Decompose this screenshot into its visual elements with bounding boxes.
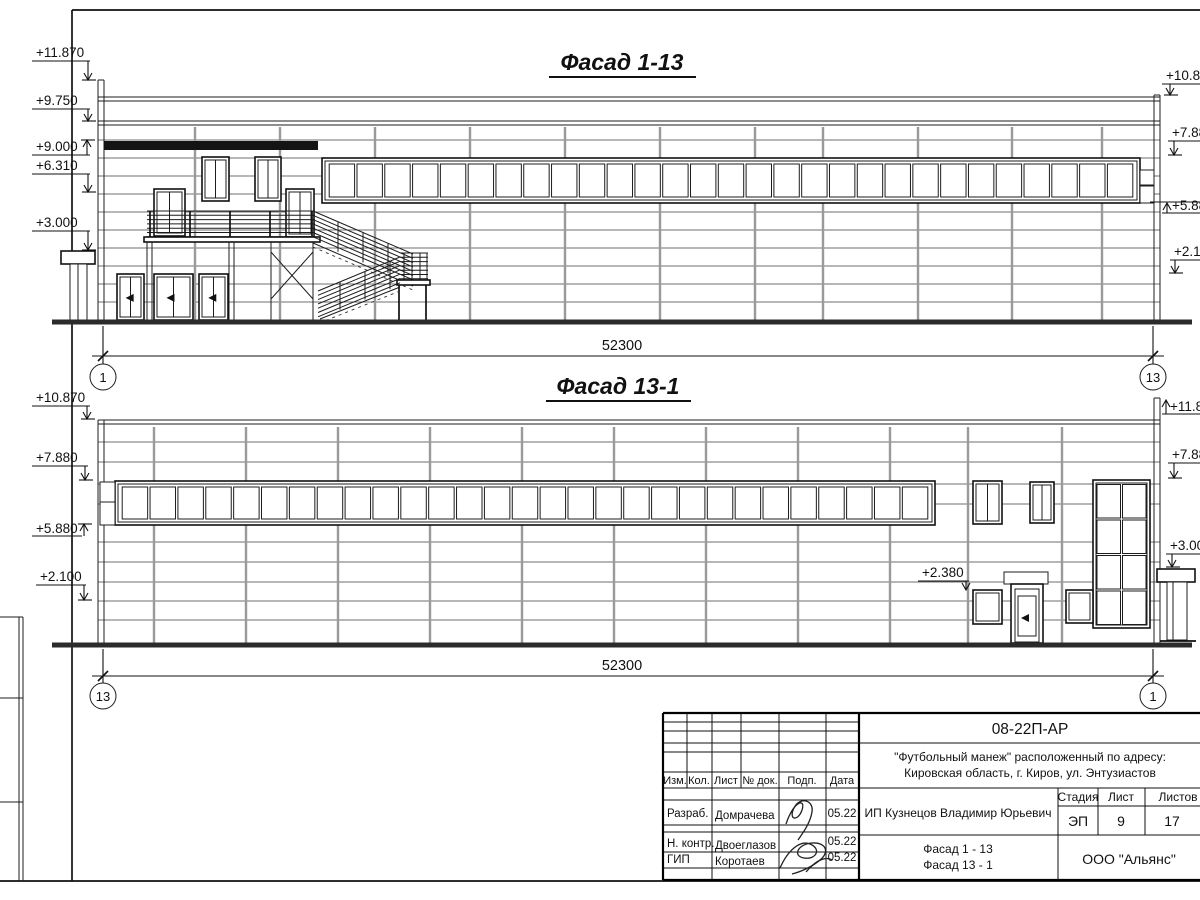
col-izm: Изм. xyxy=(663,775,687,787)
stage-value: ЭП xyxy=(1068,813,1088,829)
sheets-total: 17 xyxy=(1164,813,1180,829)
elevation-mark-label: +2.100 xyxy=(40,569,82,584)
drawing-sheet: Фасад 1-13 52300 1 13 Фасад 13-1 52300 1… xyxy=(0,0,1200,900)
elevation-mark-label: +11.870 xyxy=(1170,399,1200,414)
col-list: Лист xyxy=(714,775,738,787)
doc-number: 08-22П-АР xyxy=(992,721,1069,738)
drawing-name-line1: Фасад 1 - 13 xyxy=(923,842,993,856)
role-gip: ГИП xyxy=(667,854,690,866)
elevation-mark-label: +2.100 xyxy=(1174,244,1200,259)
stage-label: Стадия xyxy=(1058,790,1099,804)
dimension-label: 52300 xyxy=(602,338,642,354)
elevation-mark-label: +5.880 xyxy=(1172,198,1200,213)
col-kol: Кол. xyxy=(688,775,710,787)
elevation-mark-label: +6.310 xyxy=(36,158,78,173)
elevation-mark-label: +7.880 xyxy=(1172,125,1200,140)
col-doc: № док. xyxy=(742,775,777,787)
name-razrab: Домрачева xyxy=(715,810,775,822)
drawing-name-line2: Фасад 13 - 1 xyxy=(923,858,993,872)
axis-label: 1 xyxy=(1149,689,1156,704)
elevation-mark-label: +10.870 xyxy=(1166,68,1200,83)
elevation-mark-label: +7.880 xyxy=(36,450,78,465)
axis-label: 13 xyxy=(1146,370,1160,385)
role-razrab: Разраб. xyxy=(667,808,708,820)
side-stamp xyxy=(0,617,23,881)
elevation-mark-label: +5.880 xyxy=(36,521,78,536)
sheets-label: Листов xyxy=(1159,790,1198,804)
facade-13-1-dimension: 52300 13 1 xyxy=(90,649,1166,709)
dimension-label: 52300 xyxy=(602,658,642,674)
signature-nkontr-gip xyxy=(780,843,826,874)
company: ООО "Альянс" xyxy=(1082,851,1176,867)
axis-label: 13 xyxy=(96,689,110,704)
date-razrab: 05.22 xyxy=(828,808,857,820)
elevation-mark-label: +10.870 xyxy=(36,390,85,405)
date-nkontr: 05.22 xyxy=(828,836,857,848)
elevation-mark-label: +3.000 xyxy=(36,215,78,230)
role-nkontr: Н. контр. xyxy=(667,838,714,850)
axis-label: 1 xyxy=(99,370,106,385)
elevation-mark-label: +11.870 xyxy=(36,45,84,60)
title-block: Изм. Кол. Лист № док. Подп. Дата Разраб.… xyxy=(663,713,1200,880)
elevation-mark-label: +9.000 xyxy=(36,139,78,154)
project-address-line1: "Футбольный манеж" расположенный по адре… xyxy=(894,750,1166,764)
facade-1-13-title: Фасад 1-13 xyxy=(561,49,684,75)
name-gip: Коротаев xyxy=(715,856,765,868)
sheet-svg: Фасад 1-13 52300 1 13 Фасад 13-1 52300 1… xyxy=(0,0,1200,900)
name-nkontr: Двоеглазов xyxy=(715,840,776,852)
date-gip: 05.22 xyxy=(828,852,857,864)
elevation-mark-label: +7.880 xyxy=(1172,447,1200,462)
sheet-number: 9 xyxy=(1117,813,1125,829)
facade-13-1-drawing xyxy=(52,398,1196,645)
project-address-line2: Кировская область, г. Киров, ул. Энтузиа… xyxy=(904,766,1156,780)
elevation-mark-label: +3.000 xyxy=(1170,538,1200,553)
col-podp: Подп. xyxy=(787,775,816,787)
signature-razrab xyxy=(786,801,812,840)
elevation-mark-label: +9.750 xyxy=(36,93,78,108)
sheet-label: Лист xyxy=(1108,790,1135,804)
col-data: Дата xyxy=(830,775,855,787)
facade-13-1-title: Фасад 13-1 xyxy=(557,373,680,399)
facade-1-13-drawing xyxy=(52,80,1192,322)
client: ИП Кузнецов Владимир Юрьевич xyxy=(865,806,1052,820)
elevation-mark-label: +2.380 xyxy=(922,565,964,580)
